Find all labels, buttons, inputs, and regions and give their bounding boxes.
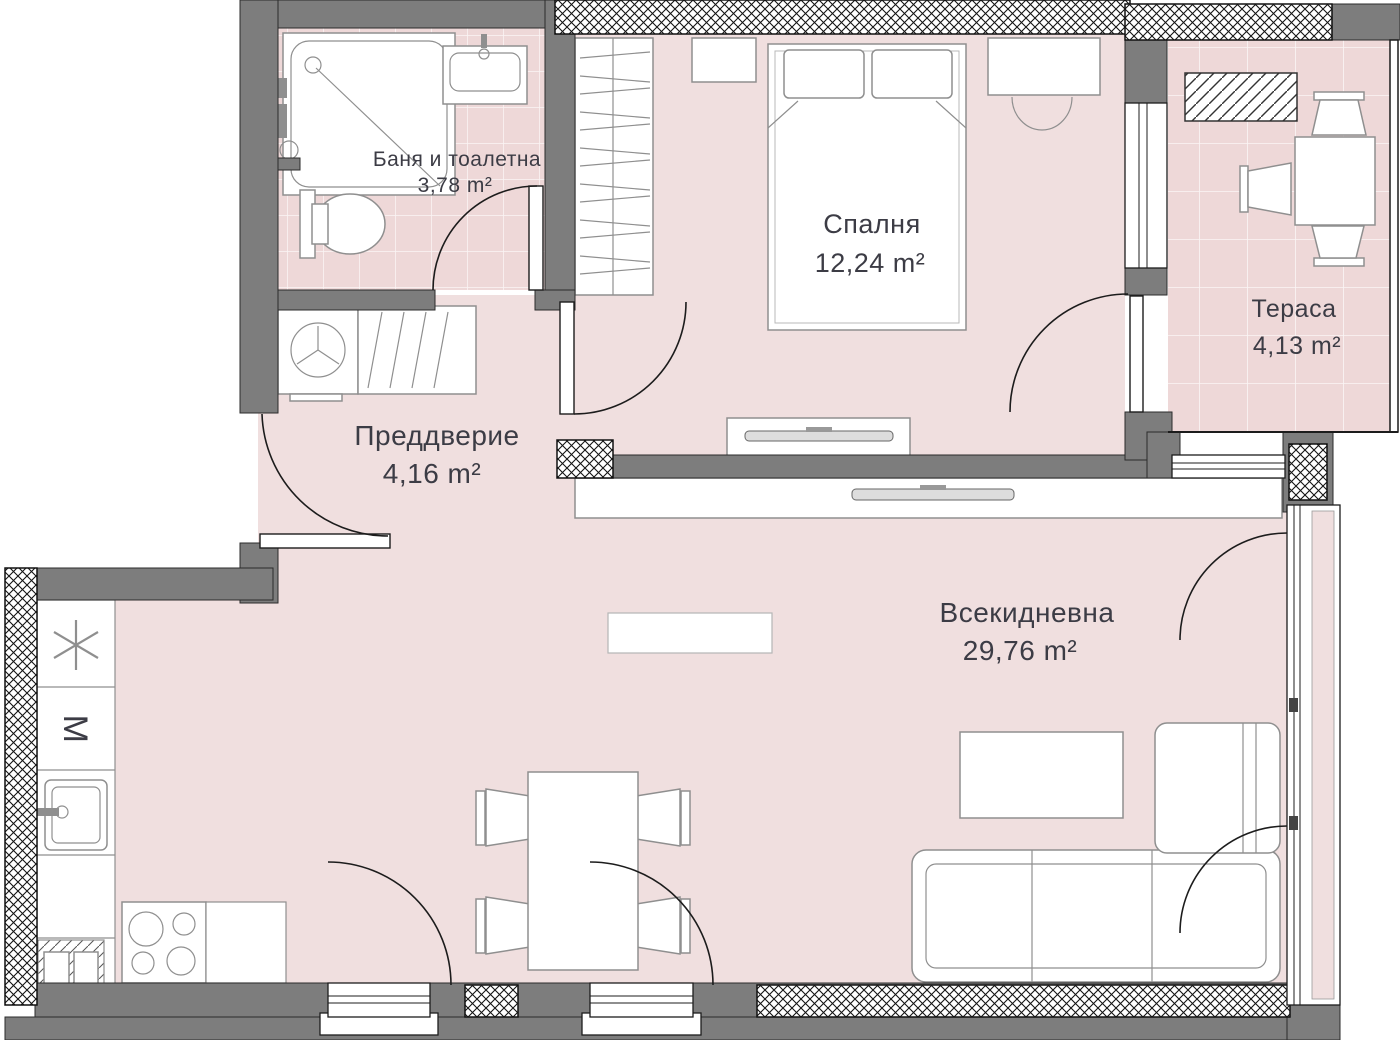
hatched-wall [557,440,613,478]
wall-segment [545,0,575,310]
door-handle [1289,698,1298,712]
dining-chair [486,789,530,846]
counter-cabinet [206,902,286,983]
ac-unit [1185,73,1297,121]
terrace-area: 4,13 m² [1253,332,1341,360]
wall-segment [1332,4,1400,40]
living-area: 29,76 m² [963,635,1078,666]
wall-segment [1125,268,1167,295]
dining-chair [486,897,530,954]
glass-wall-east [1287,505,1340,1005]
bedroom-label: Спалня [823,209,920,239]
hatched-wall [1289,444,1327,500]
window-bottom-left [320,983,438,1035]
pillow [872,50,952,98]
nightstand [692,38,756,82]
terrace-chair [1312,226,1364,258]
appliance-label: M [56,715,94,744]
living-label: Всекидневна [940,597,1115,628]
vestibule-label: Преддверие [354,420,519,451]
wall-segment [278,158,300,170]
door-handle [1289,816,1298,830]
wall-segment [613,455,1180,478]
wall-segment [1287,1005,1340,1040]
hatched-wall [555,0,1130,34]
dining-table [528,772,638,970]
wall-segment [278,290,435,310]
vestibule-area: 4,16 m² [383,458,481,489]
washing-machine [278,306,358,401]
chair-back [681,791,690,845]
dining-chair [636,789,680,846]
coffee-table [960,732,1123,818]
chair-back [476,791,485,845]
tv-icon [745,431,893,441]
window-living-terrace [1172,455,1285,478]
bedroom-desk [988,38,1100,95]
hall-cabinet [358,306,476,394]
hatched-wall [465,985,518,1017]
hatched-wall [1125,4,1332,40]
window-bottom-right [582,983,701,1035]
bedroom-tv-cabinet [727,418,910,458]
terrace-label: Тераса [1252,295,1337,323]
terrace-chair [1248,163,1291,215]
living-sideboard [575,478,1282,518]
radiator [608,613,772,653]
window-bedroom-terrace [1125,103,1167,268]
terrace-chair [1312,100,1366,135]
chair-back [1314,92,1364,100]
floor-plan-canvas: M [0,0,1400,1040]
hatched-wall [5,568,37,1005]
chair-back [476,899,485,953]
terrace-table [1295,137,1375,225]
dining-chair [636,897,680,954]
pillow [784,50,864,98]
wall-segment [240,0,575,28]
wardrobe [575,38,653,295]
tv-icon [852,489,1014,500]
wall-segment [240,0,278,413]
chair-back [1314,258,1364,266]
stove [122,902,206,983]
hatched-wall [757,985,1290,1017]
floor-plan-page: M [0,0,1400,1040]
wall-segment [37,568,273,600]
toilet [300,190,385,258]
bed [768,44,966,330]
chair-back [1240,166,1248,212]
bathroom-area: 3,78 m² [418,174,493,197]
bathroom-label: Баня и тоалетна [373,148,541,171]
bedroom-area: 12,24 m² [815,248,926,278]
